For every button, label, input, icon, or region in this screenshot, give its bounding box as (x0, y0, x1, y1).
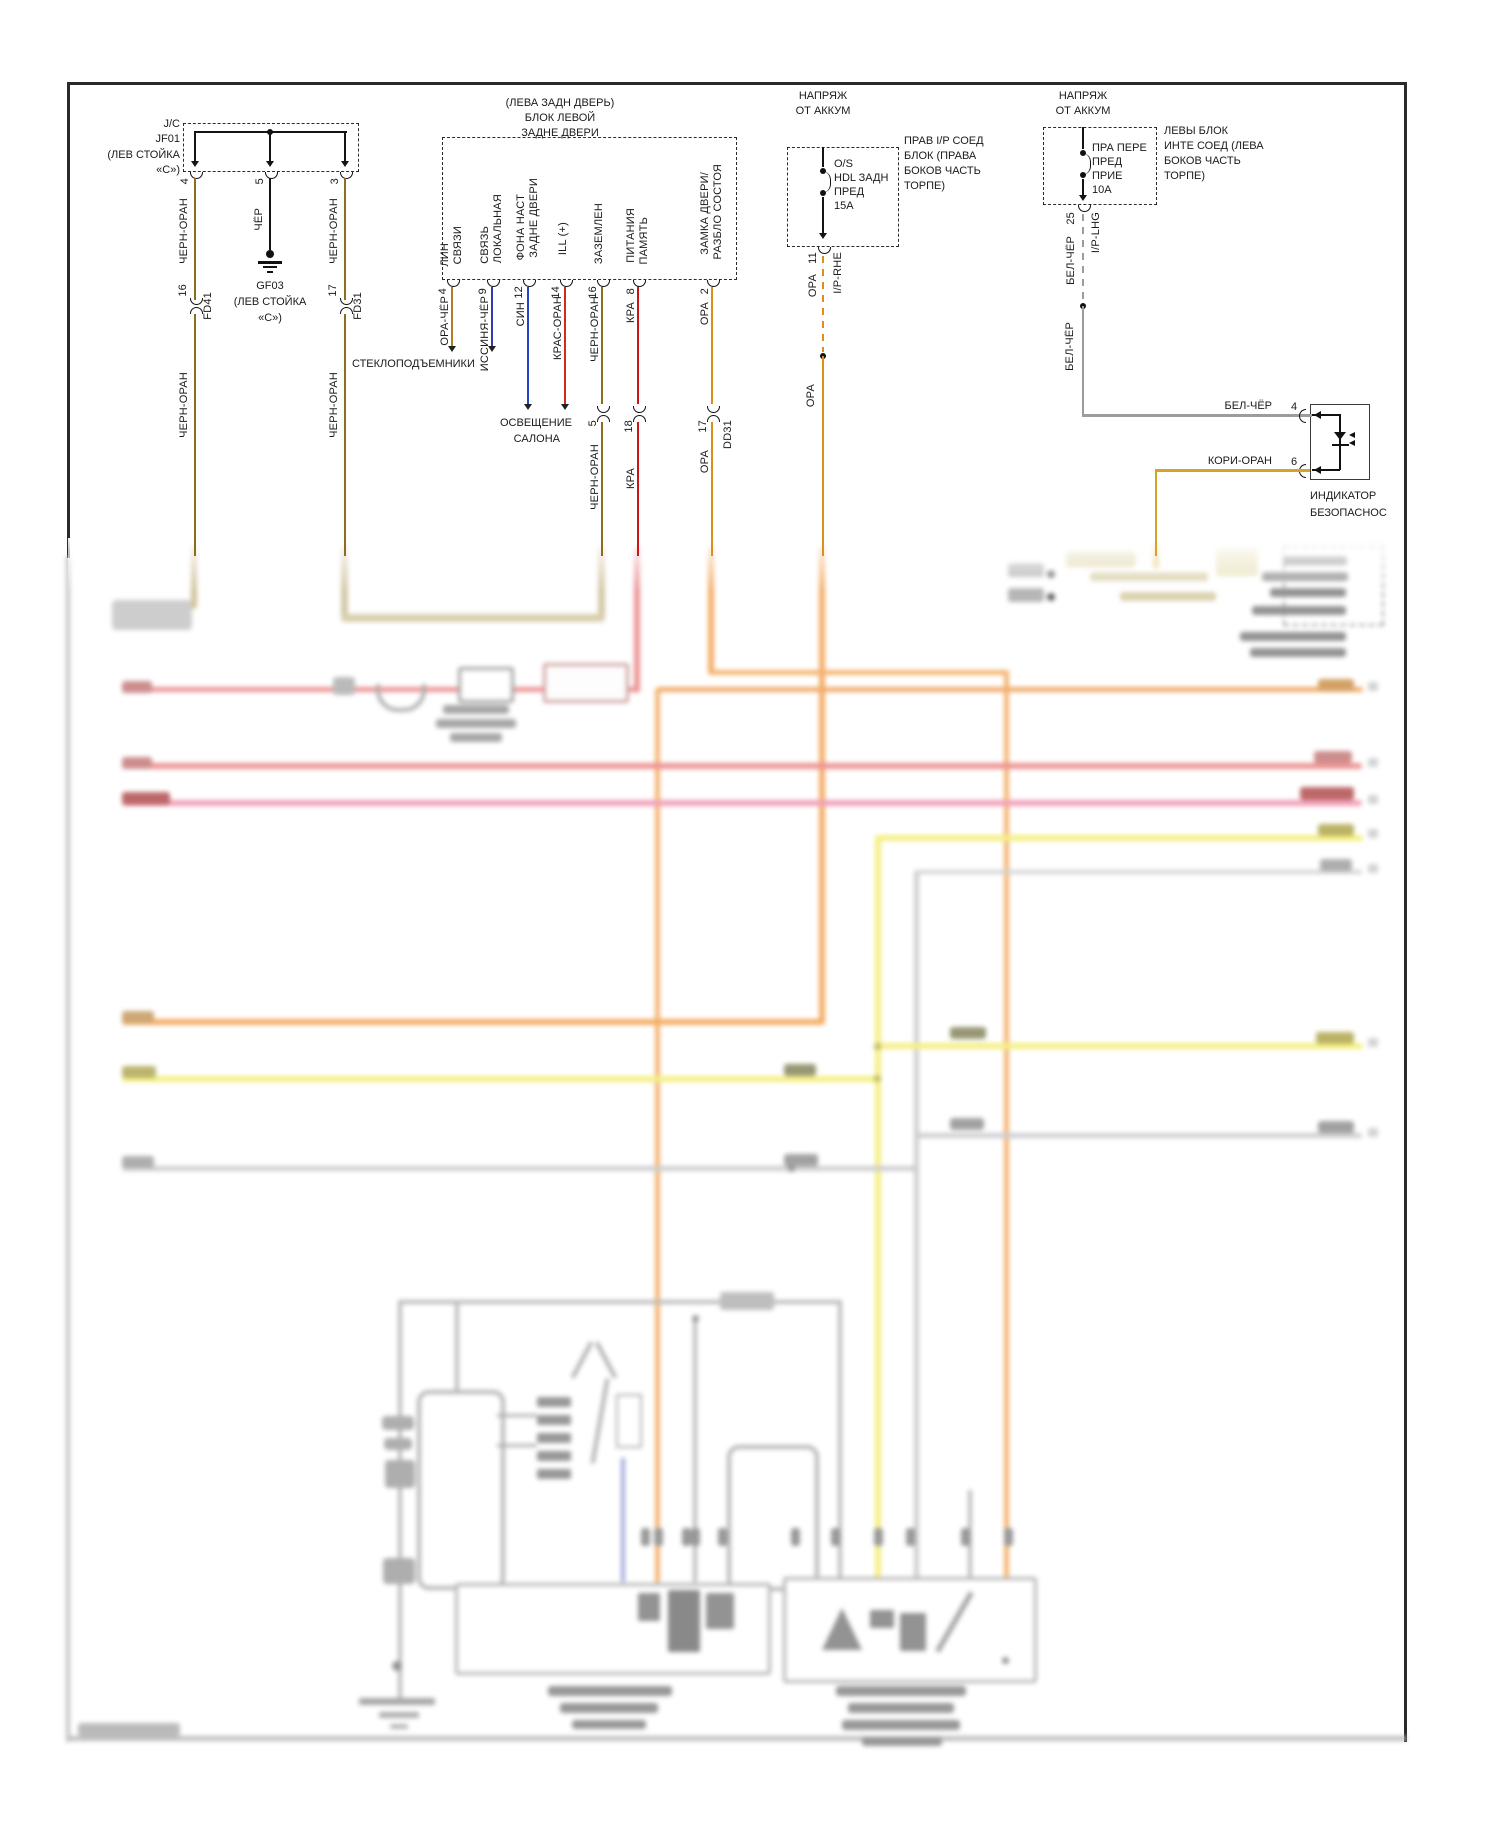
wire-pink-h (122, 800, 1362, 806)
blur-pin-tick (1368, 795, 1378, 804)
blur-wire-label (784, 1154, 818, 1166)
blur-wire-label (122, 1066, 156, 1078)
blur-pin-block (668, 1590, 700, 1652)
wire-red-h (122, 763, 1362, 769)
blur-component-box (543, 663, 629, 703)
blur-switch (376, 684, 426, 712)
wire-yellow-h (122, 1076, 880, 1082)
blur-pin-bracket (654, 1528, 663, 1546)
blur-pin-block (900, 1613, 926, 1651)
blur-text-row (842, 1720, 960, 1730)
blur-motor-box (727, 1445, 819, 1591)
blur-pin-bracket (718, 1528, 727, 1546)
blur-small-box-border (616, 1394, 642, 1448)
blur-wire-label (122, 681, 152, 693)
blur-tick (497, 1444, 537, 1447)
wire-gray (914, 871, 919, 1579)
wire-gray (398, 1300, 402, 1700)
wire-yellow (875, 836, 881, 1580)
blur-curve (591, 1378, 610, 1463)
blur-bar (537, 1397, 571, 1407)
blur-wire-label (122, 1011, 154, 1023)
blur-pin-tick (1368, 1128, 1378, 1137)
wire-gray (455, 1300, 459, 1390)
blur-label-box (112, 600, 192, 630)
wire-orange-h (710, 670, 1008, 675)
blur-wire-label (1300, 787, 1354, 800)
wire-orange-h (122, 1019, 824, 1025)
blur-text-row (560, 1703, 658, 1713)
blur-pin-bracket (831, 1528, 840, 1546)
blur-wire-label (950, 1118, 984, 1130)
blur-pin-bracket (791, 1528, 800, 1546)
wire-gray-h (914, 870, 1362, 874)
blur-pin-block (870, 1610, 894, 1628)
blur-pin-bracket (682, 1528, 691, 1546)
blur-ground-bar (379, 1712, 419, 1718)
blur-text-row (1250, 648, 1346, 657)
wire-yellow-h (875, 1043, 1363, 1049)
blur-wire-label (122, 757, 152, 769)
wire-yellow-h (875, 835, 1363, 841)
blur-wire-label (784, 1064, 816, 1076)
blur-cross (571, 1341, 593, 1378)
blur-wire-label (1316, 1032, 1354, 1044)
frame-bottom-blur (66, 1736, 1407, 1741)
blur-ground-bar (390, 1724, 408, 1729)
blur-component (384, 1438, 412, 1450)
blur-pin-tick (1368, 864, 1378, 873)
blur-wire-label (950, 1027, 986, 1039)
wire-orange (1004, 670, 1009, 1580)
blur-ground-dot (392, 1661, 402, 1671)
blur-bar (537, 1415, 571, 1425)
blur-wire-label (1314, 751, 1352, 763)
wire-orange-h (657, 687, 1363, 692)
blur-dot (1047, 593, 1055, 601)
blur-triangle (822, 1608, 862, 1650)
blur-pin-bracket (1004, 1528, 1013, 1546)
blur-component (385, 1460, 415, 1488)
blur-component (333, 677, 355, 695)
blur-pin-tick (1368, 758, 1378, 767)
blur-wire-label (1320, 859, 1352, 871)
blur-box-edge (398, 1300, 842, 1304)
blur-pin-bracket (874, 1528, 883, 1546)
blur-text-row (1252, 606, 1346, 615)
blur-text-row (450, 733, 502, 742)
junction-dot-blur (692, 1315, 699, 1322)
blur-tan-row (1120, 592, 1216, 601)
wire-blue (621, 1458, 625, 1582)
frame-left-blur (66, 556, 70, 1742)
blur-bar (537, 1451, 571, 1461)
blur-pin-bracket (961, 1528, 970, 1546)
wire-gray-h (122, 1166, 918, 1171)
wiring-diagram: J/C JF01 (ЛЕВ СТОЙКА «С») 4 5 3 ЧЕРН-ОРА… (0, 0, 1500, 1828)
blur-pin-block (706, 1593, 734, 1629)
blur-cross (595, 1341, 617, 1378)
blur-ground-bar (359, 1698, 435, 1705)
blur-text-row (436, 719, 516, 728)
blur-text-row (1240, 632, 1346, 641)
blur-wire-label (1318, 1121, 1354, 1133)
blur-text-row (862, 1737, 942, 1746)
blur-tick (497, 1414, 537, 1417)
blur-component-box (458, 667, 514, 703)
blur-motor-box (417, 1390, 505, 1590)
wire-orange (819, 545, 825, 1025)
blur-pin-bracket (641, 1528, 650, 1546)
blur-text-row (836, 1686, 966, 1696)
blur-bar (537, 1433, 571, 1443)
junction-dot-blur (874, 1075, 881, 1082)
blur-pin-tick (1368, 682, 1378, 691)
blur-pin-bracket (906, 1528, 915, 1546)
blur-text-row (548, 1686, 672, 1696)
blur-text-row (443, 705, 509, 714)
blur-pin-block (638, 1593, 660, 1621)
blur-pin-tick (1368, 829, 1378, 838)
blur-pin-tick (1368, 1038, 1378, 1047)
blur-pin-bracket (691, 1528, 700, 1546)
blur-transition-veil (68, 538, 1404, 592)
junction-dot-blur (874, 1043, 881, 1050)
wire-orange (655, 688, 660, 1583)
blur-dot (1002, 1657, 1009, 1664)
blur-footer-bar (78, 1723, 180, 1736)
blur-wire-label (122, 1156, 154, 1168)
blur-label-on-edge (720, 1292, 774, 1310)
blur-component (383, 1558, 415, 1584)
wire-tan (341, 614, 605, 622)
blur-text-row (848, 1703, 954, 1713)
wire-gray-h (914, 1133, 1362, 1138)
blur-wire-label (1318, 824, 1354, 836)
blur-text-row (572, 1720, 646, 1729)
blur-wire-label (1318, 679, 1354, 691)
blurred-lower-section (0, 0, 1500, 1828)
blur-component (382, 1416, 414, 1430)
blur-bar (537, 1469, 571, 1479)
blur-wire-label (122, 792, 170, 805)
